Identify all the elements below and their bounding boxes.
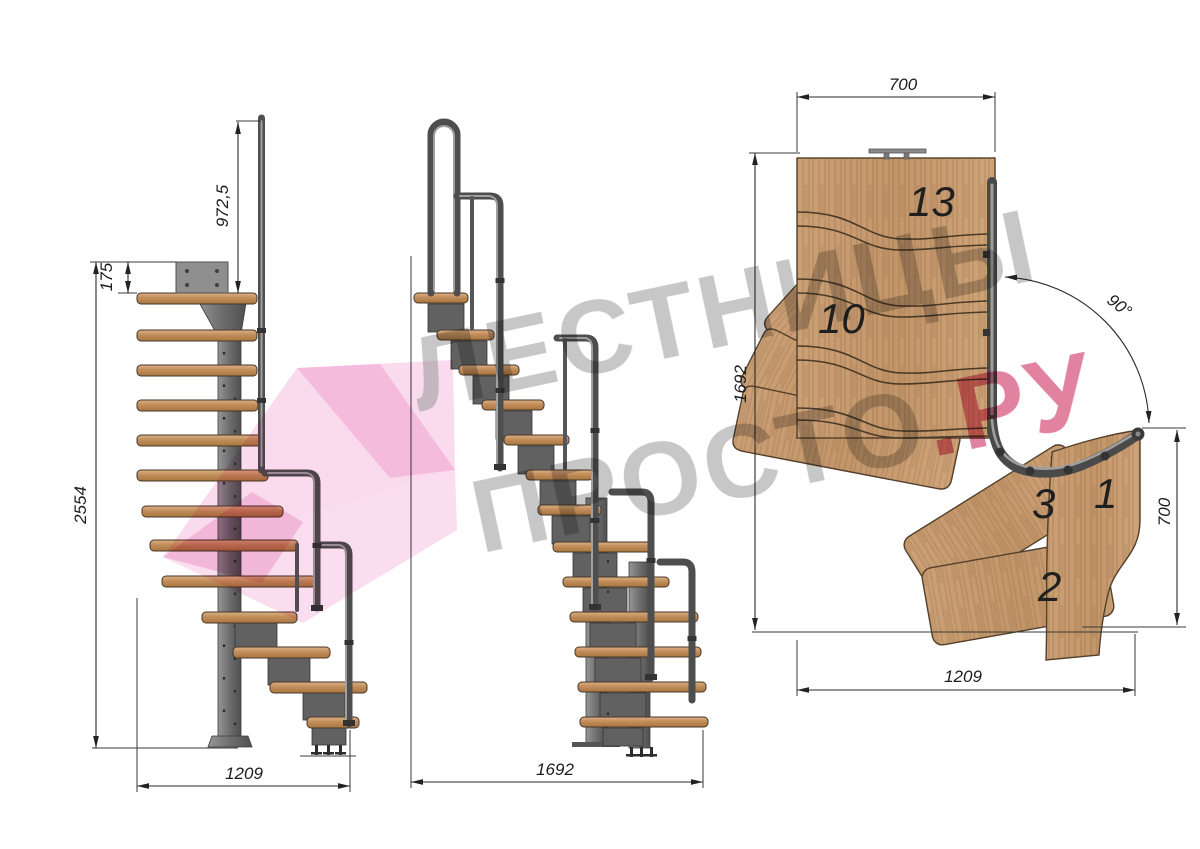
stringer-module [268,655,310,685]
side-dimensions: 1692 [411,730,703,788]
dim-plan-bottom-length: 1209 [944,667,982,686]
stringer-module [235,620,277,650]
stringer-module [303,690,345,720]
technical-drawing: 972,5 175 2554 1209 [0,0,1200,849]
dim-plan-top-width: 700 [889,75,918,94]
anchor-feet [311,745,346,755]
anchor-feet [626,747,657,757]
plate-bolt [215,283,219,287]
step-label-2: 2 [1037,563,1061,610]
step-label-1: 1 [1094,470,1117,517]
staircase-drawing-canvas: 972,5 175 2554 1209 [0,0,1200,849]
dim-handrail-height: 972,5 [213,184,232,227]
dim-floor-thickness: 175 [97,262,116,291]
dim-turn-angle: 90° [1103,290,1135,321]
plate-bolt [185,283,189,287]
dim-front-width: 1209 [225,764,263,783]
plate-bolt [215,269,219,273]
dim-side-length: 1692 [536,760,574,779]
plate-bolt [185,269,189,273]
dim-total-height: 2554 [71,486,90,525]
dim-plan-side-length: 1692 [731,365,750,403]
column-base [208,736,252,747]
dim-plan-right-width: 700 [1155,497,1174,526]
mounting-plate [176,262,228,293]
step-label-3: 3 [1032,480,1055,527]
